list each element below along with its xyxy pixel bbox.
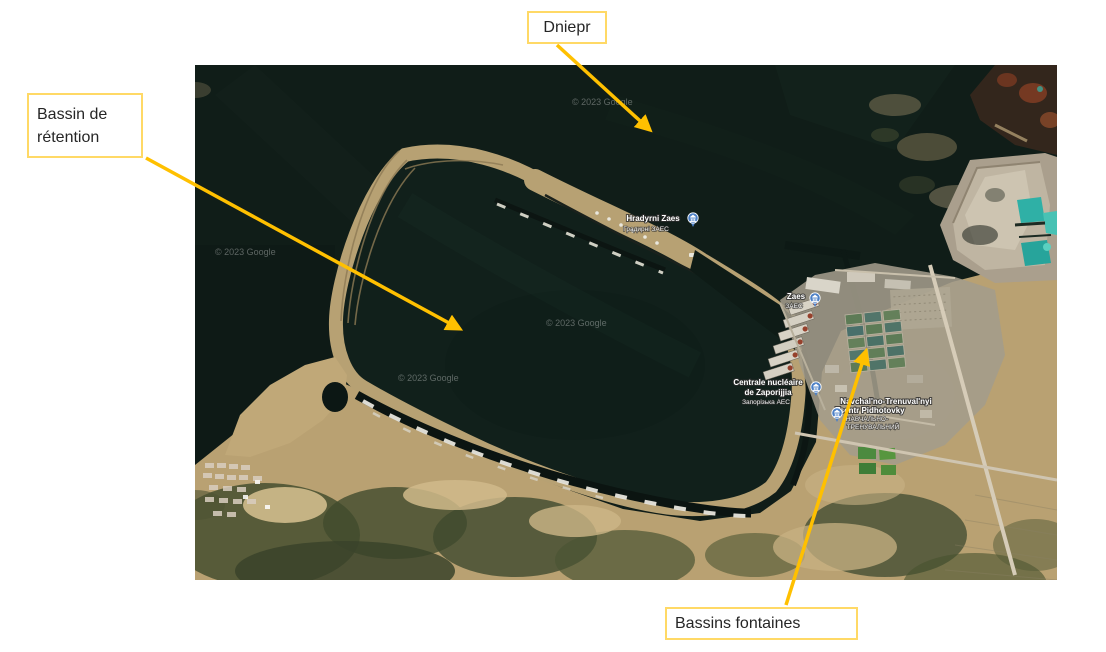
callout-dniepr-label: Dniepr: [543, 16, 590, 39]
poi-label: НАВЧАЛЬНО-: [846, 416, 888, 423]
callout-retention-basin: Bassin de rétention: [27, 93, 143, 158]
callout-retention-line2: rétention: [37, 126, 141, 149]
spray-ponds: [845, 309, 906, 372]
callout-spray-ponds-label: Bassins fontaines: [675, 612, 856, 635]
small-lake: [322, 382, 348, 412]
callout-retention-line1: Bassin de: [37, 103, 141, 126]
satellite-map: © 2023 Google © 2023 Google © 2023 Googl…: [195, 65, 1057, 580]
google-watermark: © 2023 Google: [398, 373, 459, 383]
callout-dniepr: Dniepr: [527, 11, 607, 44]
google-watermark: © 2023 Google: [572, 97, 633, 107]
poi-label: Navchal'no-Trenuval'nyi: [840, 397, 931, 406]
poi-label: ЗАЕС: [785, 303, 803, 310]
poi-label: Tsentr Pidhotovky: [835, 406, 905, 415]
poi-label: Centrale nucléaire: [733, 378, 803, 387]
poi-label: Zaes: [787, 292, 806, 301]
callout-spray-ponds: Bassins fontaines: [665, 607, 858, 640]
poi-label: ТРЕНУВАЛЬНИЙ: [847, 422, 900, 431]
poi-label: de Zaporijjia: [744, 388, 792, 397]
google-watermark: © 2023 Google: [546, 318, 607, 328]
google-watermark: © 2023 Google: [215, 247, 276, 257]
poi-label: Hradyrni Zaes: [626, 214, 680, 223]
poi-label: Запорізька АЕС: [742, 398, 790, 406]
slide-canvas: © 2023 Google © 2023 Google © 2023 Googl…: [0, 0, 1106, 652]
poi-label: Градирні ЗАЕС: [623, 225, 669, 233]
